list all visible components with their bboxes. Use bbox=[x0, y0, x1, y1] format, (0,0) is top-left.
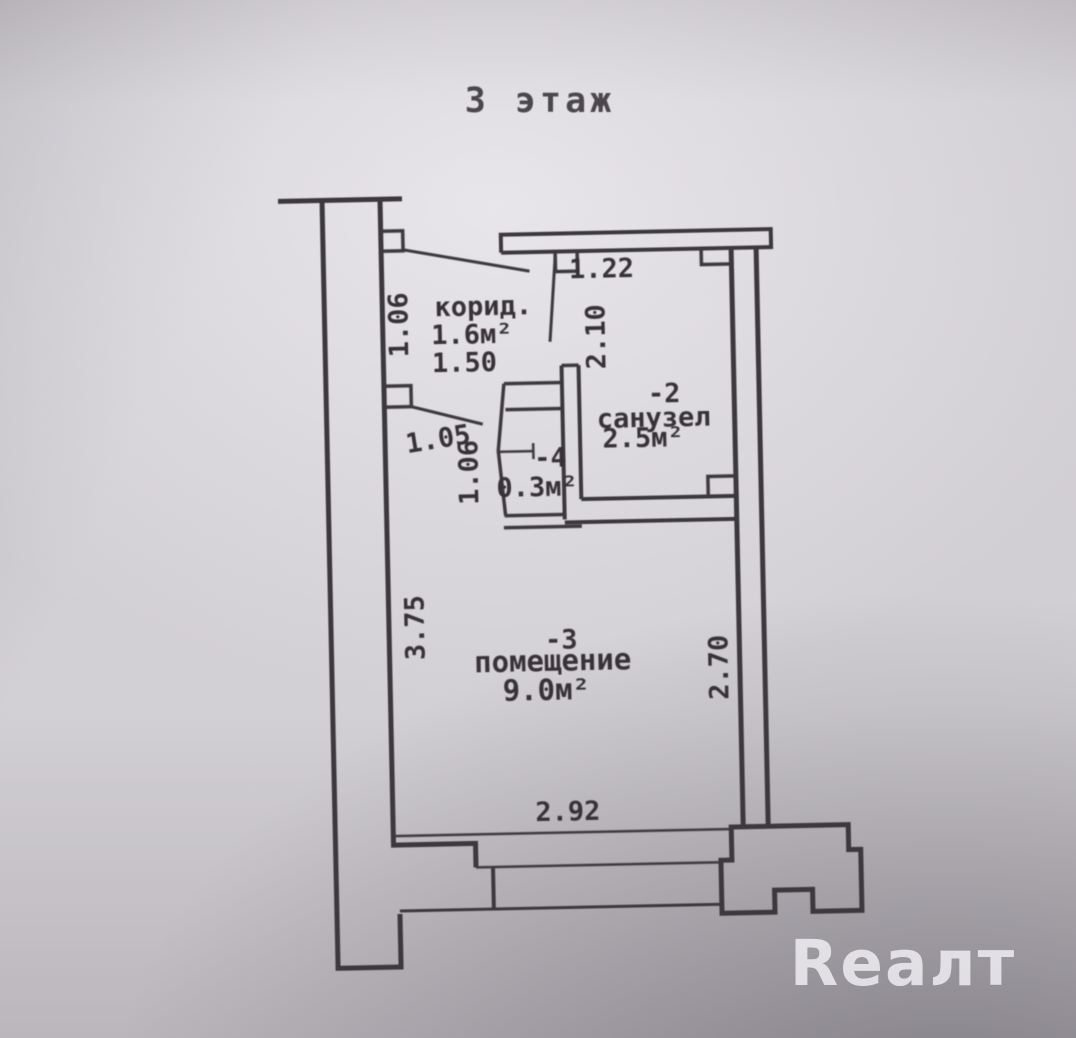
step-bottom-line bbox=[400, 904, 721, 911]
realt-watermark-logo: Reaлт bbox=[790, 927, 1016, 1000]
dim-left-door-lower: 1.06 bbox=[453, 440, 485, 506]
closet-dim-leader bbox=[499, 443, 533, 460]
stair-landing-outline bbox=[720, 824, 862, 913]
dim-bathroom-depth: 2.10 bbox=[580, 304, 612, 370]
door-jamb-bathroom-bottom bbox=[708, 476, 736, 497]
closet-bottom-line-2 bbox=[504, 526, 582, 528]
step-middle-line bbox=[476, 862, 720, 867]
area-label-bathroom: 2.5м² bbox=[602, 422, 684, 455]
floor-title: 3 этаж bbox=[465, 81, 615, 121]
dim-room-left: 3.75 bbox=[399, 595, 431, 661]
door-jamb-left-upper bbox=[381, 231, 403, 251]
dim-left-door-upper: 1.06 bbox=[383, 292, 415, 358]
floor-plan-svg: 3 этаж bbox=[0, 0, 1076, 1038]
wall-left-top-cap bbox=[278, 199, 402, 202]
wall-bathroom-bottom-top bbox=[581, 496, 736, 499]
area-label-room: 9.0м² bbox=[502, 672, 590, 708]
dim-corridor-width: 1.50 bbox=[432, 347, 498, 379]
door-leaf-bathroom bbox=[548, 256, 557, 342]
wall-right-outer bbox=[756, 247, 768, 826]
floor-plan-photo: 3 этаж bbox=[0, 0, 1076, 1038]
closet-bottom-line-1 bbox=[505, 514, 565, 515]
closet-top-line-2 bbox=[505, 408, 562, 409]
dim-top-width: 1.22 bbox=[569, 253, 635, 285]
closet-top-line-1 bbox=[504, 382, 562, 383]
number-label-closet: -4 bbox=[534, 442, 567, 474]
walls bbox=[278, 189, 863, 969]
dim-room-right: 2.70 bbox=[703, 634, 735, 700]
room-floor-line bbox=[395, 829, 731, 836]
wall-bathroom-bottom-bottom bbox=[565, 519, 737, 523]
wall-right-inner bbox=[731, 248, 743, 827]
step-vertical bbox=[493, 867, 494, 909]
door-jamb-left-lower bbox=[384, 386, 411, 408]
area-label-corridor: 1.6м² bbox=[431, 319, 513, 352]
wall-partition-right bbox=[579, 365, 582, 499]
area-label-closet: 0.3м² bbox=[496, 471, 578, 504]
labels: 1.06 корид. 1.6м² 1.50 1.22 2.10 -2 сану… bbox=[382, 251, 738, 831]
dim-room-bottom: 2.92 bbox=[535, 796, 601, 828]
